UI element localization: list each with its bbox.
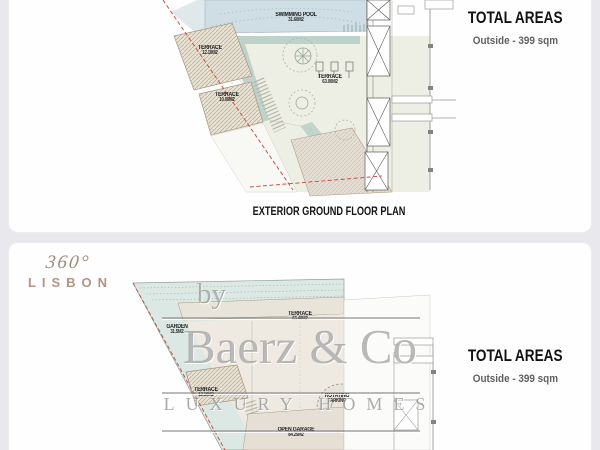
plan-label-open-garage: OPEN GARAGE84.25M2 — [275, 423, 318, 441]
total-areas-title: TOTAL AREAS — [468, 346, 563, 366]
total-areas-title: TOTAL AREAS — [468, 8, 563, 28]
plan-label-swimming-pool: SWIMMING POOL31.60M2 — [272, 8, 320, 26]
plan-label-terrace-3: TERRACE63.00M2 — [316, 70, 344, 88]
logo-lisbon: LISBON — [27, 275, 114, 290]
logo-360: 360° — [44, 252, 91, 274]
plan-label-rotating-parking: ROTATINGPARKING — [323, 389, 352, 407]
plan-label-terrace-left: TERRACE12.10M2 — [192, 383, 220, 401]
plan-label-garden: GARDEN31.5M2 — [165, 320, 190, 338]
total-areas-block-top: TOTAL AREAS Outside - 399 sqm — [452, 8, 578, 49]
360-lisbon-logo: 360° LISBON — [22, 252, 114, 290]
listing-gallery: SWIMMING POOL31.60M2 TERRACE12.10M2 TERR… — [0, 0, 600, 450]
plan-caption: EXTERIOR GROUND FLOOR PLAN — [233, 202, 424, 220]
plan-label-terrace-2: TERRACE10.00M2 — [213, 88, 241, 106]
total-areas-block-bottom: TOTAL AREAS Outside - 399 sqm — [452, 346, 578, 387]
plan-label-terrace-1: TERRACE12.10M2 — [196, 41, 224, 59]
plan-label-terrace-top: TERRACE63.40M2 — [286, 307, 314, 325]
total-areas-value: Outside - 399 sqm — [472, 373, 557, 385]
total-areas-value: Outside - 399 sqm — [472, 35, 557, 47]
